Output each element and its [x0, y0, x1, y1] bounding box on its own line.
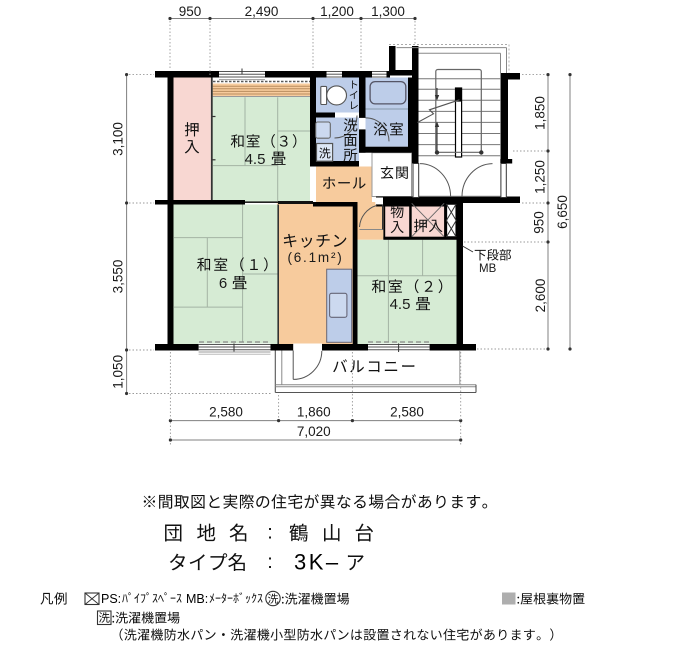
- svg-text:MB:: MB:: [186, 592, 208, 606]
- svg-text:MB: MB: [479, 263, 497, 275]
- svg-text:1,300: 1,300: [371, 4, 405, 19]
- svg-text:1,250: 1,250: [533, 160, 548, 194]
- svg-text:(6.1m²): (6.1m²): [287, 250, 343, 265]
- svg-text:3,550: 3,550: [111, 260, 126, 294]
- svg-text:1,200: 1,200: [320, 4, 354, 19]
- svg-text:950: 950: [179, 4, 202, 19]
- svg-text:7,020: 7,020: [297, 424, 331, 439]
- svg-text:6,650: 6,650: [555, 195, 570, 229]
- svg-text:4.5: 4.5: [390, 296, 411, 313]
- svg-text::: :: [267, 523, 272, 544]
- svg-text:1,860: 1,860: [297, 405, 331, 420]
- svg-text:2,580: 2,580: [209, 405, 243, 420]
- svg-text:2,600: 2,600: [533, 279, 548, 313]
- svg-text::: :: [267, 552, 272, 573]
- svg-text:950: 950: [532, 211, 547, 234]
- svg-text:3,100: 3,100: [111, 122, 126, 156]
- svg-text:3K–: 3K–: [294, 550, 341, 575]
- svg-text:PS:: PS:: [101, 592, 121, 606]
- svg-text:4.5: 4.5: [245, 151, 266, 168]
- svg-text:1,850: 1,850: [533, 96, 548, 130]
- svg-text:2,580: 2,580: [390, 405, 424, 420]
- svg-text:2,490: 2,490: [245, 4, 279, 19]
- svg-text:1,050: 1,050: [111, 355, 126, 389]
- svg-text:6: 6: [219, 275, 227, 292]
